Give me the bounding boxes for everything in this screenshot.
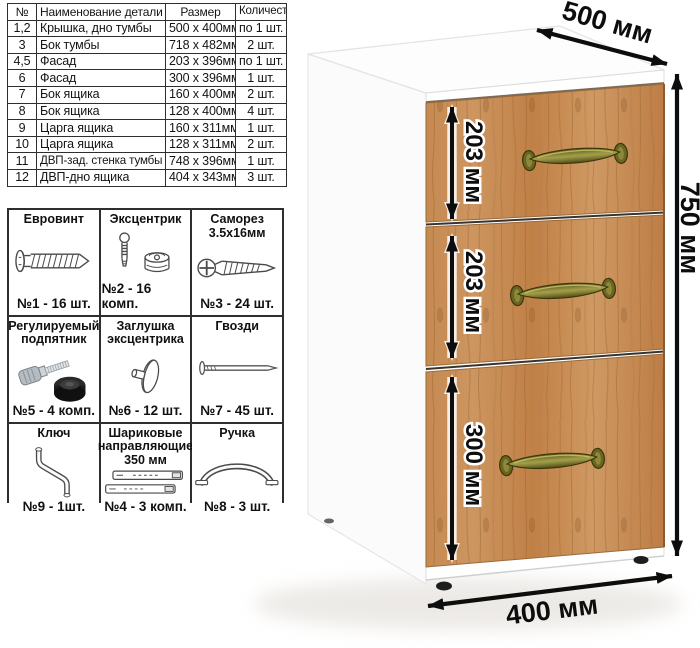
- cabinet-drawing: 500 мм 750 мм 400 мм 203 мм 203 мм 300 м…: [0, 0, 700, 648]
- height-dimension-label: 750 мм: [675, 182, 700, 275]
- cabinet-left-side: [308, 54, 426, 584]
- drawer-1-dimension-label: 203 мм: [460, 121, 487, 203]
- drawer-3-dimension-label: 300 мм: [460, 424, 487, 506]
- cabinet-foot: [436, 582, 452, 591]
- cabinet-foot: [634, 556, 649, 564]
- floor-shadow: [253, 578, 683, 630]
- drawer-2-dimension-label: 203 мм: [460, 251, 487, 333]
- cabinet-foot: [324, 519, 334, 524]
- assembly-sheet: № Наименование детали Размер Количество …: [0, 0, 700, 648]
